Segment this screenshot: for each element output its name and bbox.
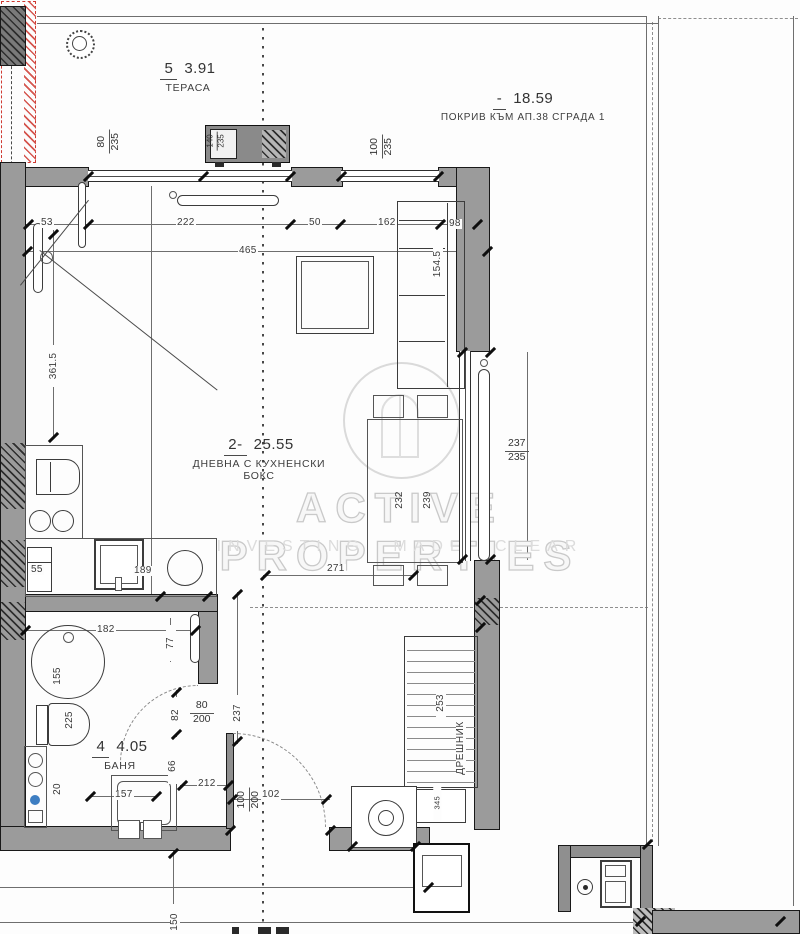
sofa-cushion-3	[399, 341, 445, 342]
washing-machine-door-inner	[378, 810, 394, 826]
dim-line-h-7	[0, 887, 430, 888]
dim-345: 345	[433, 785, 441, 821]
window-top-2-mid	[341, 176, 439, 177]
diagonal-mark-2	[39, 250, 217, 391]
wall-fixture-box-2	[143, 820, 162, 839]
kitchen-basin-round	[167, 550, 203, 586]
room-number: 2-	[224, 436, 246, 456]
clipped-text-fragment-1	[232, 927, 239, 934]
dim-line-v-8	[793, 16, 794, 906]
wall-small-room-left	[558, 845, 571, 912]
room-label-terrace: 53.91 ТЕРАСА	[140, 60, 236, 94]
clipped-text-fragment-3	[276, 927, 289, 934]
coffee-table-inner	[301, 261, 369, 329]
room-number: 4	[92, 738, 109, 758]
dim-tick-26	[321, 794, 332, 805]
entry-door-leaf	[78, 182, 86, 248]
dim-465: 465	[238, 246, 258, 256]
parapet-dash-line	[652, 22, 653, 842]
dim-271: 271	[326, 564, 346, 574]
dim-155: 155	[53, 659, 63, 693]
dim-line-v-5	[646, 16, 647, 846]
dim-182: 182	[96, 625, 116, 635]
dim-right-window: 237235	[505, 438, 529, 464]
radiator-top-valve-icon	[169, 191, 177, 199]
radiator-right-valve-icon	[480, 359, 488, 367]
room-number: -	[493, 90, 507, 110]
room-number: 5	[160, 60, 177, 80]
hall-door-swing-arc	[233, 733, 326, 827]
kitchen-faucet-icon	[115, 577, 122, 591]
sofa-back-line	[447, 203, 448, 387]
room-area: 25.55	[254, 436, 294, 453]
dim-entry-door: 100200	[236, 788, 262, 812]
dim-361-5: 361.5	[49, 345, 59, 387]
wall-top-pier-2	[291, 167, 343, 187]
dim-237: 237	[233, 695, 243, 731]
dim-162: 162	[377, 218, 397, 228]
wall-left-hatch-2	[1, 540, 25, 587]
dim-top-window: 100235	[369, 135, 395, 159]
bath-fixture-circle-1	[28, 753, 43, 768]
kitchen-cabinet-55-line	[28, 562, 51, 563]
radiator-right	[478, 369, 490, 561]
sofa-cushion-2	[399, 295, 445, 296]
dim-102: 102	[261, 790, 281, 800]
dining-chair-3	[373, 565, 404, 586]
dim-55: 55	[30, 565, 44, 575]
clipped-text-fragment-2	[258, 927, 271, 934]
room-name: ПОКРИВ КЪМ АП.38 СГРАДА 1	[433, 112, 613, 123]
wall-left-hatch-1	[1, 443, 25, 509]
dim-50: 50	[308, 218, 322, 228]
dim-225: 225	[65, 703, 75, 737]
room-area: 3.91	[184, 60, 215, 77]
floor-plan-canvas: ACTIVE PROPERTIES INVESTING MADE CLEAR	[0, 0, 800, 934]
cooktop-burner-2	[52, 510, 74, 532]
bath-fixture-box	[28, 810, 43, 823]
window-top-1-mid	[88, 176, 292, 177]
dim-terrace-window: 140235	[207, 131, 227, 150]
dim-bath-door: 80200	[190, 700, 214, 726]
roof-dash-line	[658, 18, 798, 19]
dining-chair-1	[373, 395, 404, 418]
radiator-top	[177, 195, 279, 206]
ceiling-dash-line	[250, 607, 648, 608]
dim-line-h-10	[37, 23, 659, 24]
wall-small-room-top	[558, 845, 653, 858]
dim-terrace-door: 80235	[96, 130, 122, 154]
dim-232: 232	[395, 483, 405, 517]
dim-150: 150	[170, 904, 180, 934]
wall-top-left-hatch	[1, 7, 25, 65]
towel-radiator	[190, 614, 200, 663]
dim-53: 53	[40, 218, 54, 228]
sofa-arm-line	[399, 220, 445, 221]
room-name: БАНЯ	[75, 760, 165, 772]
small-room-panel-top	[605, 865, 626, 877]
wall-bath-right	[198, 611, 218, 684]
shower-tray-inner	[117, 781, 171, 825]
wall-fixture-box-1	[118, 820, 140, 839]
dim-tick-14	[48, 432, 59, 443]
bath-fixture-circle-2	[28, 772, 43, 787]
dining-chair-4	[417, 565, 448, 586]
wall-small-room-right	[640, 845, 653, 912]
room-name: ТЕРАСА	[140, 82, 236, 94]
room-label-roof: -18.59 ПОКРИВ КЪМ АП.38 СГРАДА 1	[433, 90, 613, 123]
shaft-box-inner	[422, 855, 462, 887]
toilet-tank	[36, 705, 48, 745]
small-room-valve-dot	[583, 885, 588, 890]
bath-blue-marker	[30, 795, 40, 805]
dim-157: 157	[114, 790, 134, 800]
dim-line-v-6	[658, 16, 659, 846]
room-label-bath: 44.05 БАНЯ	[75, 738, 165, 772]
dim-239: 239	[423, 483, 433, 517]
small-room-panel-bottom	[605, 881, 626, 903]
dim-212: 212	[197, 779, 217, 789]
kitchen-sink-unit	[36, 459, 80, 495]
kitchen-sink-divider	[50, 462, 51, 492]
ac-foot-1	[215, 162, 224, 167]
dim-66: 66	[168, 748, 178, 784]
dim-253: 253	[436, 685, 446, 721]
room-name: ДНЕВНА С КУХНЕНСКИ БОКС	[180, 458, 338, 482]
room-label-living: 2-25.55 ДНЕВНА С КУХНЕНСКИ БОКС	[180, 436, 338, 482]
dining-chair-2	[417, 395, 448, 418]
dim-154-5: 154.5	[433, 243, 443, 285]
dim-20: 20	[53, 771, 63, 807]
terrace-drain-inner	[72, 36, 87, 51]
dim-222: 222	[176, 218, 196, 228]
dim-77: 77	[166, 625, 176, 661]
ac-foot-2	[272, 162, 281, 167]
shower-drain-icon	[63, 632, 74, 643]
room-area: 4.05	[116, 738, 147, 755]
dim-189: 189	[133, 566, 153, 576]
window-right-mid	[465, 351, 466, 561]
dim-98: 98	[448, 219, 462, 229]
cooktop-burner-1	[29, 510, 51, 532]
dining-table	[367, 419, 463, 563]
room-label-closet: ДРЕШНИК	[456, 717, 466, 779]
ac-unit-grille	[262, 130, 286, 158]
dim-line-h-9	[37, 16, 647, 17]
room-area: 18.59	[513, 90, 553, 107]
